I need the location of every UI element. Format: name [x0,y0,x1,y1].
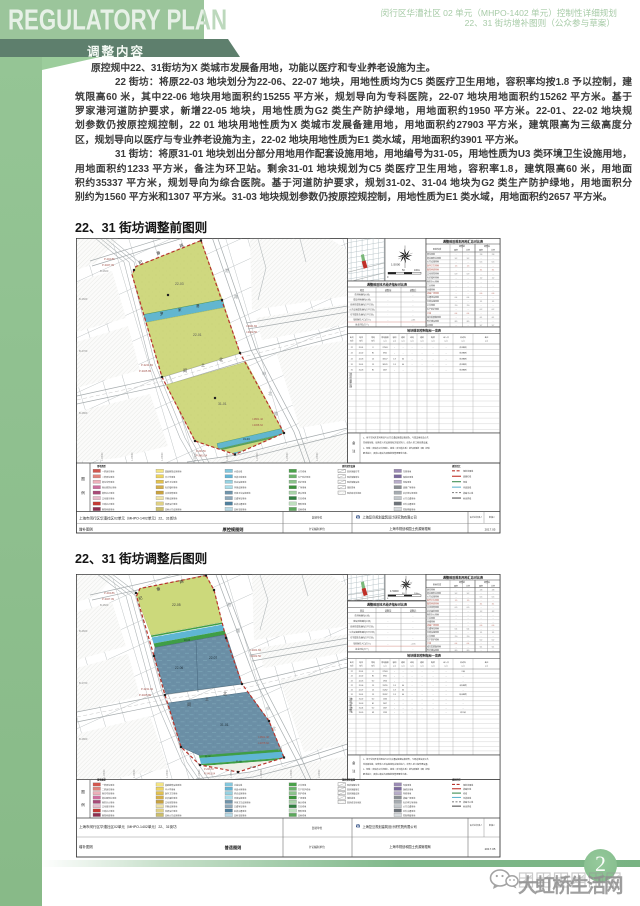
svg-text:6.1: 6.1 [480,317,483,319]
svg-text:1.5: 1.5 [455,266,458,268]
svg-text:地块规划控制指标一览表: 地块规划控制指标一览表 [407,653,442,658]
svg-text:0.4: 0.4 [467,643,470,645]
svg-text:31-03: 31-03 [243,437,250,441]
svg-text:31: 31 [351,370,353,372]
svg-text:31-03: 31-03 [359,370,364,372]
svg-text:闵: 闵 [183,367,187,373]
svg-text:2.8: 2.8 [492,254,495,256]
svg-text:22-04: 22-04 [184,639,191,642]
svg-text:编号: 编号 [359,665,363,668]
svg-text:(㎡): (㎡) [384,340,387,343]
svg-text:港: 港 [227,601,231,607]
svg-text:北: 北 [223,690,227,696]
svg-text:编号: 编号 [350,665,354,668]
svg-text:0.2: 0.2 [480,309,483,311]
svg-text:31-03: 31-03 [359,703,364,705]
svg-text:22-07: 22-07 [359,689,364,691]
svg-text:B-2700: B-2700 [79,349,88,353]
svg-text:22: 22 [351,676,353,678]
svg-text:9.2: 9.2 [455,593,458,595]
svg-text:例: 例 [81,490,85,495]
svg-text:(㎡): (㎡) [402,340,405,343]
svg-text:(㎡): (㎡) [384,665,387,668]
svg-text:申: 申 [262,370,266,376]
svg-text:2017.05: 2017.05 [485,528,496,532]
svg-text:6.1: 6.1 [492,647,495,649]
svg-text:E1: E1 [372,676,374,678]
svg-text:P-203.56: P-203.56 [204,768,214,771]
svg-text:编号: 编号 [350,340,354,343]
svg-text:G2: G2 [372,698,374,700]
svg-text:2657: 2657 [383,370,387,372]
svg-text:(㎡): (㎡) [393,340,396,343]
svg-text:2.8: 2.8 [492,589,495,591]
svg-text:(㎡): (㎡) [432,665,435,668]
svg-text:1-18000: 1-18000 [167,769,169,778]
svg-text:(㎡): (㎡) [462,665,465,668]
svg-text:31-05: 31-05 [359,712,364,714]
svg-text:编号: 编号 [359,340,363,343]
svg-text:调整前后技术经济指标对比表: 调整前后技术经济指标对比表 [367,281,408,286]
svg-text:C5: C5 [372,358,374,360]
svg-text:G2: G2 [372,708,374,710]
svg-text:22: 22 [351,685,353,687]
svg-text:36570: 36570 [383,364,388,366]
svg-text:1.8: 1.8 [393,685,396,687]
svg-text:扩初编制单位: 扩初编制单位 [309,527,325,531]
svg-text:C5: C5 [372,689,374,691]
svg-text:60: 60 [402,685,404,687]
svg-text:(㎡): (㎡) [432,340,435,343]
svg-text:REGULATORY PLAN: REGULATORY PLAN [8,4,227,36]
svg-text:2.0: 2.0 [467,305,470,307]
svg-text:0.4: 0.4 [467,313,470,315]
svg-text:31-02: 31-02 [205,756,211,758]
svg-text:(㎡): (㎡) [393,665,396,668]
svg-text:1-18000: 1-18000 [287,452,289,461]
svg-text:0.4: 0.4 [467,297,470,299]
svg-text:B-2600: B-2600 [100,269,109,273]
svg-text:0.4: 0.4 [455,643,458,645]
svg-text:3.1: 3.1 [492,604,495,606]
svg-text:注: 注 [352,768,355,773]
svg-text:0.5: 0.5 [480,596,483,598]
svg-text:增补图则: 增补图则 [79,527,93,532]
svg-text:2.0: 2.0 [455,636,458,638]
svg-text:1.2: 1.2 [480,611,483,613]
svg-text:3.1: 3.1 [480,270,483,272]
svg-text:备: 备 [352,760,355,765]
svg-text:22: 22 [351,347,353,349]
svg-text:31-01: 31-01 [359,364,364,366]
svg-text:22: 22 [351,671,353,673]
svg-text:(㎡): (㎡) [421,665,424,668]
svg-text:0.6: 0.6 [492,293,495,295]
svg-text:1.1: 1.1 [492,632,495,634]
svg-text:上海市规划和国土资源管理局: 上海市规划和国土资源管理局 [389,844,430,849]
svg-text:北: 北 [219,356,223,362]
svg-text:1307: 1307 [383,708,387,710]
svg-text:1.2: 1.2 [480,277,483,279]
svg-text:0.4: 0.4 [455,629,458,631]
svg-text:1-18000: 1-18000 [134,769,136,778]
svg-text:P-203.56: P-203.56 [196,450,206,453]
svg-text:1.1: 1.1 [480,632,483,634]
svg-text:31: 31 [351,694,353,696]
svg-text:3901: 3901 [383,676,387,678]
svg-text:B-2700: B-2700 [79,681,88,685]
svg-text:31-04: 31-04 [359,708,364,710]
svg-text:P-3405.89: P-3405.89 [139,693,152,697]
svg-text:1950: 1950 [383,680,387,682]
svg-text:27903: 27903 [383,347,388,349]
svg-text:C5: C5 [372,685,374,687]
svg-text:监制单位: 监制单位 [312,516,323,520]
svg-text:U3: U3 [372,712,374,714]
svg-text:22-07: 22-07 [209,656,217,660]
svg-text:1-18000: 1-18000 [199,769,201,778]
svg-text:8.9: 8.9 [467,321,470,323]
svg-text:P-204.86: P-204.86 [104,257,115,261]
svg-text:(㎡): (㎡) [445,665,448,668]
svg-text:(㎡): (㎡) [402,665,405,668]
svg-text:0.4: 0.4 [467,629,470,631]
svg-text:(㎡): (㎡) [421,340,424,343]
svg-text:9.2: 9.2 [467,258,470,260]
svg-text:I-3801.42: I-3801.42 [252,417,264,421]
svg-text:0.2: 0.2 [480,639,483,641]
svg-text:31-01: 31-01 [218,402,227,406]
svg-text:监制单位: 监制单位 [312,826,323,830]
svg-text:1-18000: 1-18000 [102,452,104,461]
svg-text:编号: 编号 [371,665,375,668]
svg-text:22-01: 22-01 [359,671,364,673]
svg-text:1-18000: 1-18000 [319,769,321,778]
svg-text:港: 港 [225,267,229,273]
svg-text:P-3463.04: P-3463.04 [196,455,208,458]
svg-text:1.5: 1.5 [455,600,458,602]
svg-text:1-18000: 1-18000 [231,769,233,778]
svg-text:P-3241.84: P-3241.84 [141,687,154,691]
svg-text:上海市闵行区华漕社区02单元（MHPO-1402单元）22、: 上海市闵行区华漕社区02单元（MHPO-1402单元）22、31街坊 [79,824,177,829]
svg-text:0.9: 0.9 [455,274,458,276]
svg-text:0.5: 0.5 [492,596,495,598]
svg-text:B-2600: B-2600 [79,629,88,633]
svg-text:31-01: 31-01 [220,723,229,727]
svg-text:(㎡): (㎡) [485,340,488,343]
svg-text:2657: 2657 [383,703,387,705]
svg-text:27903: 27903 [383,671,388,673]
svg-text:1-18000: 1-18000 [227,452,229,461]
svg-text:3901: 3901 [383,353,387,355]
svg-text:1.5: 1.5 [467,600,470,602]
svg-text:31-01: 31-01 [359,694,364,696]
svg-text:G2: G2 [372,680,374,682]
svg-text:C5: C5 [372,364,374,366]
svg-text:图: 图 [81,477,85,481]
svg-text:8.9: 8.9 [455,321,458,323]
svg-text:上海复旦规划建筑设计研究院有限公司: 上海复旦规划建筑设计研究院有限公司 [363,515,417,520]
svg-text:北: 北 [268,390,272,396]
svg-text:调整前后规划用地汇总对比表: 调整前后规划用地汇总对比表 [443,239,484,244]
svg-text:100m: 100m [414,269,420,272]
svg-text:31-03: 31-03 [236,761,242,763]
svg-text:例: 例 [81,802,85,807]
svg-text:0.2: 0.2 [492,309,495,311]
svg-text:I-3308.62: I-3308.62 [252,423,264,427]
svg-text:1.8: 1.8 [393,694,396,696]
svg-text:路: 路 [278,745,282,751]
svg-text:22-03: 22-03 [175,282,184,286]
svg-text:编号: 编号 [371,340,375,343]
svg-text:22-01: 22-01 [359,347,364,349]
svg-text:扩初编制单位: 扩初编制单位 [309,845,325,849]
svg-text:0.5: 0.5 [480,262,483,264]
svg-text:P-3241.84: P-3241.84 [141,363,154,367]
svg-text:E1: E1 [372,370,374,372]
svg-text:备: 备 [352,440,355,445]
svg-text:1-18000: 1-18000 [317,452,319,461]
svg-text:22: 22 [351,358,353,360]
svg-text:22: 22 [351,353,353,355]
svg-text:60: 60 [402,689,404,691]
svg-text:+1.35: +1.35 [411,643,416,645]
svg-text:1-18000: 1-18000 [261,769,263,778]
svg-text:0.9: 0.9 [455,607,458,609]
svg-text:22-06: 22-06 [359,685,364,687]
svg-text:B-2800: B-2800 [79,737,88,741]
svg-text:15262: 15262 [383,689,388,691]
svg-text:路: 路 [236,627,240,633]
svg-text:I-3801.42: I-3801.42 [258,735,270,739]
svg-text:1-18000: 1-18000 [291,769,293,778]
svg-text:(㎡): (㎡) [485,665,488,668]
svg-text:C5: C5 [372,694,374,696]
svg-text:P-3463.04: P-3463.04 [204,773,216,776]
svg-text:复: 复 [356,515,360,520]
svg-text:1:5000: 1:5000 [390,589,399,593]
svg-text:I-3402.50: I-3402.50 [246,330,258,334]
svg-text:P-3467.09: P-3467.09 [102,263,115,267]
svg-text:I-3402.50: I-3402.50 [250,654,262,658]
svg-text:22-01: 22-01 [193,333,202,337]
svg-text:22: 22 [351,680,353,682]
svg-text:0.4: 0.4 [455,313,458,315]
svg-text:30517: 30517 [383,358,388,360]
svg-text:(㎡): (㎡) [462,340,465,343]
svg-text:上海市闵行区华漕社区02单元（MHPO-1402单元）22、: 上海市闵行区华漕社区02单元（MHPO-1402单元）22、31街坊 [79,516,177,521]
svg-text:1560: 1560 [383,698,387,700]
svg-text:土: 土 [205,696,209,702]
svg-text:注: 注 [352,448,355,453]
svg-text:I-3401.84: I-3401.84 [250,648,262,652]
svg-text:22-02: 22-02 [359,353,364,355]
svg-text:1-18000: 1-18000 [104,769,106,778]
svg-text:-1.35: -1.35 [411,319,415,321]
svg-text:9.2: 9.2 [467,593,470,595]
svg-text:6.1: 6.1 [492,317,495,319]
svg-text:I-3401.84: I-3401.84 [246,324,258,328]
svg-text:P-3405.89: P-3405.89 [139,369,152,373]
svg-text:路: 路 [234,293,238,299]
svg-text:22: 22 [351,689,353,691]
svg-text:原控规图则: 原控规图则 [223,526,244,533]
svg-text:31-04: 31-04 [250,767,256,769]
svg-text:地块规划控制指标一览表: 地块规划控制指标一览表 [407,328,442,333]
svg-text:闵: 闵 [187,701,191,707]
svg-text:0.6: 0.6 [480,293,483,295]
svg-text:0.4: 0.4 [455,297,458,299]
svg-text:I-3308.62: I-3308.62 [258,741,270,745]
svg-text:6.1: 6.1 [480,647,483,649]
svg-text:图: 图 [81,790,85,794]
svg-text:P-204.86: P-204.86 [104,591,115,595]
svg-text:22-03: 22-03 [359,358,364,360]
svg-text:9.2: 9.2 [455,258,458,260]
svg-text:1.1: 1.1 [492,301,495,303]
svg-text:路: 路 [274,410,278,416]
svg-text:31-02: 31-02 [359,698,364,700]
svg-text:2.0: 2.0 [467,636,470,638]
svg-text:调整前后技术经济指标对比表: 调整前后技术经济指标对比表 [367,602,408,607]
svg-text:北: 北 [272,725,276,731]
svg-text:31: 31 [351,364,353,366]
svg-text:1.2: 1.2 [492,611,495,613]
svg-text:(㎡): (㎡) [411,340,414,343]
svg-text:(㎡): (㎡) [411,665,414,668]
svg-text:2.0: 2.0 [455,305,458,307]
svg-text:1233: 1233 [383,712,387,714]
svg-text:1.1: 1.1 [480,301,483,303]
svg-text:土: 土 [201,362,205,368]
svg-text:(㎡): (㎡) [445,340,448,343]
svg-text:1.8: 1.8 [393,358,396,360]
svg-text:15255: 15255 [383,685,388,687]
svg-text:0.9: 0.9 [467,274,470,276]
svg-text:3.1: 3.1 [492,270,495,272]
svg-text:1.5: 1.5 [467,266,470,268]
svg-text:3.1: 3.1 [480,604,483,606]
svg-text:0.2: 0.2 [492,639,495,641]
svg-text:2017.05: 2017.05 [485,847,496,851]
svg-text:1.8: 1.8 [393,364,396,366]
svg-text:35337: 35337 [383,694,388,696]
svg-text:9.7: 9.7 [492,325,495,327]
svg-text:1.2: 1.2 [492,277,495,279]
svg-text:22-06: 22-06 [175,666,183,670]
svg-text:复: 复 [356,824,360,829]
svg-text:100m: 100m [414,593,420,595]
svg-text:2.8: 2.8 [480,589,483,591]
svg-text:1-18000: 1-18000 [257,452,259,461]
svg-text:22-02: 22-02 [359,676,364,678]
svg-text:E1: E1 [372,703,374,705]
svg-text:9.7: 9.7 [480,325,483,327]
svg-text:E1: E1 [372,353,374,355]
svg-text:普适图则: 普适图则 [225,844,242,851]
svg-text:增补图则: 增补图则 [79,844,93,849]
svg-text:P-3467.09: P-3467.09 [102,597,115,601]
svg-text:22-05: 22-05 [359,680,364,682]
svg-text:1:5000: 1:5000 [391,263,401,267]
svg-text:0.6: 0.6 [492,625,495,627]
svg-text:0.5: 0.5 [492,262,495,264]
svg-text:调整前后规划用地汇总对比表: 调整前后规划用地汇总对比表 [443,575,484,580]
svg-text:0.6: 0.6 [480,625,483,627]
svg-text:1-18000: 1-18000 [162,452,164,461]
svg-text:B-2800: B-2800 [79,411,88,415]
svg-text:22-05: 22-05 [172,603,181,607]
svg-text:B-2600: B-2600 [100,603,109,607]
svg-text:B-2600: B-2600 [79,297,88,301]
svg-text:申: 申 [266,705,270,711]
svg-text:60: 60 [402,694,404,696]
svg-text:上海市规划和国土资源管理局: 上海市规划和国土资源管理局 [389,526,430,531]
svg-text:0.9: 0.9 [467,607,470,609]
svg-text:60: 60 [402,364,404,366]
svg-text:上海复旦规划建筑设计研究院有限公司: 上海复旦规划建筑设计研究院有限公司 [363,824,417,829]
svg-text:1.8: 1.8 [393,689,396,691]
svg-text:60: 60 [402,358,404,360]
svg-text:1-18000: 1-18000 [132,452,134,461]
svg-text:2.8: 2.8 [480,254,483,256]
svg-text:1-18000: 1-18000 [195,452,197,461]
